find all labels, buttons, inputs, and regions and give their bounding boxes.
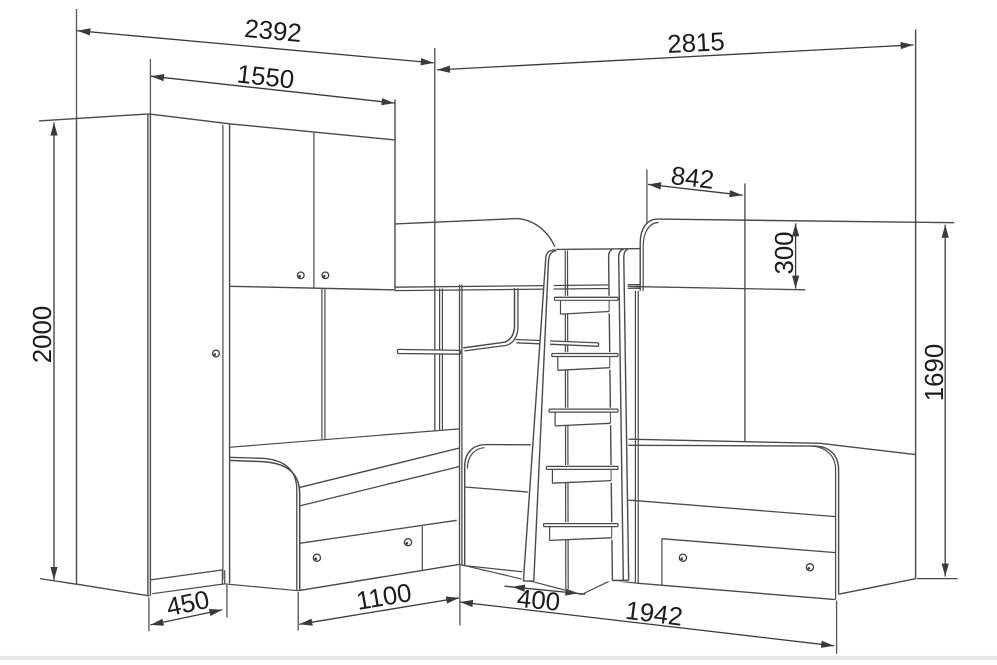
svg-text:400: 400 bbox=[516, 585, 562, 617]
svg-text:300: 300 bbox=[771, 231, 799, 274]
svg-text:2392: 2392 bbox=[243, 15, 303, 48]
svg-text:1690: 1690 bbox=[921, 344, 949, 401]
svg-text:2815: 2815 bbox=[667, 28, 726, 59]
svg-text:2000: 2000 bbox=[29, 306, 57, 363]
svg-text:842: 842 bbox=[669, 162, 715, 195]
